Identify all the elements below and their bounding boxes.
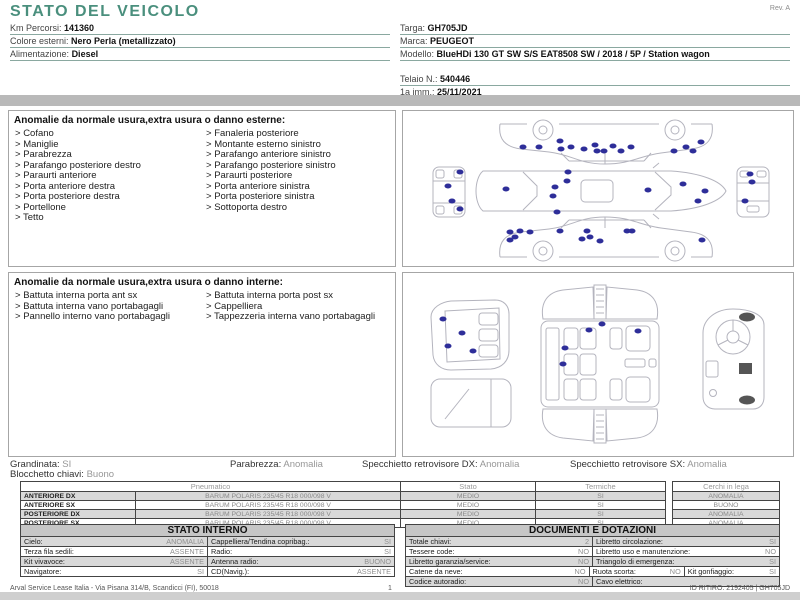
damage-dot	[552, 185, 559, 190]
revision-label: Rev. A	[770, 5, 790, 12]
tire-winter: SI	[536, 492, 666, 501]
damage-dot	[445, 184, 452, 189]
field-label: Colore esterni:	[10, 36, 69, 46]
anomaly-list-col2: Fanaleria posterioreMontante esterno sin…	[202, 129, 393, 224]
field-label: Marca:	[400, 36, 428, 46]
damage-dot	[592, 143, 599, 148]
tire-winter: SI	[536, 501, 666, 510]
damage-dot	[618, 149, 625, 154]
field-label: Modello:	[400, 49, 434, 59]
field-label: Alimentazione:	[10, 49, 69, 59]
bottom-edge-bar	[0, 592, 800, 600]
anomaly-list-col1: Battuta interna porta ant sxBattuta inte…	[11, 291, 202, 323]
summary-parabrezza: Parabrezza: Anomalia	[230, 459, 323, 470]
damage-dot	[749, 180, 756, 185]
damage-dot	[601, 149, 608, 154]
alloy-row: ANOMALIA	[673, 492, 780, 501]
alloy-state: ANOMALIA	[673, 510, 780, 519]
anomaly-list-col2: Battuta interna porta post sxCappelliera…	[202, 291, 393, 323]
damage-dot	[507, 238, 514, 243]
tire-position: POSTERIORE DX	[21, 510, 136, 519]
field-value: Nero Perla (metallizzato)	[71, 36, 176, 46]
tire-table: Pneumatico Stato Termiche ANTERIORE DX B…	[20, 481, 666, 528]
field-label: Km Percorsi:	[10, 23, 62, 33]
alloy-state: BUONO	[673, 501, 780, 510]
summary-specchietto-dx: Specchietto retrovisore DX: Anomalia	[362, 459, 519, 470]
tire-row: ANTERIORE DX BARUM POLARIS 235/45 R18 00…	[21, 492, 666, 501]
tire-position: ANTERIORE SX	[21, 501, 136, 510]
damage-dot	[699, 238, 706, 243]
anomaly-item: Porta posteriore sinistra	[206, 192, 389, 203]
damage-dot	[565, 170, 572, 175]
damage-dot	[558, 147, 565, 152]
anomaly-item: Sottoporta destro	[206, 203, 389, 214]
summary-blocchetto: Blocchetto chiavi: Buono	[10, 469, 114, 480]
interior-damage-dots	[403, 273, 793, 456]
field-row: Km Percorsi: 141360	[10, 22, 390, 35]
damage-dot	[562, 346, 569, 351]
interior-state-table: STATO INTERNO Cielo:ANOMALIA Cappelliera…	[20, 524, 395, 577]
damage-dot	[517, 229, 524, 234]
tire-winter: SI	[536, 510, 666, 519]
damage-dot	[445, 344, 452, 349]
col-header-cerchi: Cerchi in lega	[673, 482, 780, 492]
interior-anomalies-panel: Anomalie da normale usura,extra usura o …	[8, 272, 396, 457]
anomaly-item: Paraurti posteriore	[206, 171, 389, 182]
table-row: Tessere code:NO Libretto uso e manutenzi…	[405, 547, 780, 557]
tire-model: BARUM POLARIS 235/45 R18 000/098 V	[136, 492, 401, 501]
anomaly-item: Pannello interno vano portabagagli	[15, 312, 198, 323]
field-label: Targa:	[400, 23, 425, 33]
damage-dot	[440, 317, 447, 322]
damage-dot	[671, 149, 678, 154]
exterior-damage-dots	[403, 111, 793, 266]
field-value: PEUGEOT	[430, 36, 474, 46]
damage-dot	[536, 145, 543, 150]
field-value: 141360	[64, 23, 94, 33]
tire-model: BARUM POLARIS 235/45 R18 000/098 V	[136, 501, 401, 510]
field-value: GH705JD	[428, 23, 468, 33]
table-row: Totale chiavi:2 Libretto circolazione:SI	[405, 537, 780, 547]
damage-dot	[557, 229, 564, 234]
field-row: Targa: GH705JD	[400, 22, 790, 35]
tire-state: MEDIO	[401, 501, 536, 510]
tire-position: ANTERIORE DX	[21, 492, 136, 501]
field-value: 540446	[440, 74, 470, 84]
damage-dot	[459, 331, 466, 336]
field-row: Marca: PEUGEOT	[400, 35, 790, 48]
documents-table: DOCUMENTI E DOTAZIONI Totale chiavi:2 Li…	[405, 524, 780, 587]
vehicle-fields-left: Km Percorsi: 141360 Colore esterni: Nero…	[10, 22, 390, 61]
damage-dot	[599, 322, 606, 327]
damage-dot	[527, 230, 534, 235]
alloy-row: BUONO	[673, 501, 780, 510]
tire-table-header: Pneumatico Stato Termiche	[21, 482, 666, 492]
tire-row: ANTERIORE SX BARUM POLARIS 235/45 R18 00…	[21, 501, 666, 510]
damage-dot	[560, 362, 567, 367]
damage-dot	[584, 229, 591, 234]
field-row: Modello: BlueHDi 130 GT SW S/S EAT8508 S…	[400, 48, 790, 73]
damage-dot	[683, 145, 690, 150]
table-row: Cielo:ANOMALIA Cappelliera/Tendina copri…	[20, 537, 395, 547]
damage-dot	[597, 239, 604, 244]
exterior-damage-diagram	[402, 110, 794, 267]
anomaly-item: Parabrezza	[15, 150, 198, 161]
damage-dot	[680, 182, 687, 187]
damage-dot	[457, 207, 464, 212]
damage-dot	[564, 179, 571, 184]
table-row: Kit vivavoce:ASSENTE Antenna radio:BUONO	[20, 557, 395, 567]
field-value: BlueHDi 130 GT SW S/S EAT8508 SW / 2018 …	[437, 49, 710, 59]
anomaly-list-col1: CofanoManiglieParabrezzaParafango poster…	[11, 129, 202, 224]
tire-model: BARUM POLARIS 235/45 R18 000/098 V	[136, 510, 401, 519]
alloy-wheels-table: Cerchi in lega ANOMALIABUONOANOMALIAANOM…	[672, 481, 780, 528]
footer-company: Arval Service Lease Italia - Via Pisana …	[10, 585, 219, 592]
table-row: Navigatore:SI CD(Navig.):ASSENTE	[20, 567, 395, 577]
interior-damage-diagram	[402, 272, 794, 457]
anomaly-item: Paraurti anteriore	[15, 171, 198, 182]
damage-dot	[628, 145, 635, 150]
damage-dot	[520, 145, 527, 150]
anomaly-item: Tappezzeria interna vano portabagagli	[206, 312, 389, 323]
divider-bar	[0, 95, 800, 106]
damage-dot	[629, 229, 636, 234]
footer-page-number: 1	[388, 585, 392, 592]
damage-dot	[503, 187, 510, 192]
col-header-termiche: Termiche	[536, 482, 666, 492]
damage-dot	[587, 235, 594, 240]
tire-row: POSTERIORE DX BARUM POLARIS 235/45 R18 0…	[21, 510, 666, 519]
damage-dot	[470, 349, 477, 354]
anomaly-item: Fanaleria posteriore	[206, 129, 389, 140]
damage-dot	[568, 145, 575, 150]
field-row: Colore esterni: Nero Perla (metallizzato…	[10, 35, 390, 48]
alloy-row: ANOMALIA	[673, 510, 780, 519]
damage-dot	[645, 188, 652, 193]
damage-dot	[742, 199, 749, 204]
footer-id: ID RITIRO: 2192405 | GH705JD	[690, 585, 790, 592]
anomaly-item: Battuta interna porta ant sx	[15, 291, 198, 302]
table-row: Terza fila sedili:ASSENTE Radio:SI	[20, 547, 395, 557]
anomaly-item: Cofano	[15, 129, 198, 140]
damage-dot	[579, 237, 586, 242]
panel-title: Anomalie da normale usura,extra usura o …	[9, 111, 395, 129]
anomaly-item: Parafango anteriore sinistro	[206, 150, 389, 161]
damage-dot	[449, 199, 456, 204]
tire-state: MEDIO	[401, 492, 536, 501]
damage-dot	[610, 144, 617, 149]
page-title: STATO DEL VEICOLO	[10, 3, 200, 21]
damage-dot	[554, 210, 561, 215]
table-row: Catene da neve:NO Ruota scorta:NO Kit go…	[405, 567, 780, 577]
col-header-pneumatico: Pneumatico	[21, 482, 401, 492]
field-row: Alimentazione: Diesel	[10, 48, 390, 61]
damage-dot	[747, 172, 754, 177]
damage-dot	[457, 170, 464, 175]
damage-dot	[557, 139, 564, 144]
damage-dot	[695, 199, 702, 204]
anomaly-item: Porta posteriore destra	[15, 192, 198, 203]
anomaly-item: Battuta interna porta post sx	[206, 291, 389, 302]
vehicle-report-page: STATO DEL VEICOLO Rev. A Km Percorsi: 14…	[0, 0, 800, 600]
field-row: Telaio N.: 540446	[400, 73, 790, 86]
damage-dot	[690, 149, 697, 154]
summary-specchietto-sx: Specchietto retrovisore SX: Anomalia	[570, 459, 727, 470]
col-header-stato: Stato	[401, 482, 536, 492]
field-value: Diesel	[72, 49, 99, 59]
table-header: STATO INTERNO	[20, 524, 395, 537]
anomaly-item: Tetto	[15, 213, 198, 224]
vehicle-fields-right: Targa: GH705JD Marca: PEUGEOT Modello: B…	[400, 22, 790, 99]
table-row: Libretto garanzia/service:NO Triangolo d…	[405, 557, 780, 567]
damage-dot	[594, 149, 601, 154]
damage-dot	[702, 189, 709, 194]
table-header: DOCUMENTI E DOTAZIONI	[405, 524, 780, 537]
alloy-state: ANOMALIA	[673, 492, 780, 501]
exterior-anomalies-panel: Anomalie da normale usura,extra usura o …	[8, 110, 396, 267]
damage-dot	[581, 147, 588, 152]
damage-dot	[550, 194, 557, 199]
field-label: Telaio N.:	[400, 74, 438, 84]
damage-dot	[635, 329, 642, 334]
damage-dot	[698, 140, 705, 145]
panel-title: Anomalie da normale usura,extra usura o …	[9, 273, 395, 291]
tire-state: MEDIO	[401, 510, 536, 519]
damage-dot	[507, 230, 514, 235]
damage-dot	[586, 328, 593, 333]
